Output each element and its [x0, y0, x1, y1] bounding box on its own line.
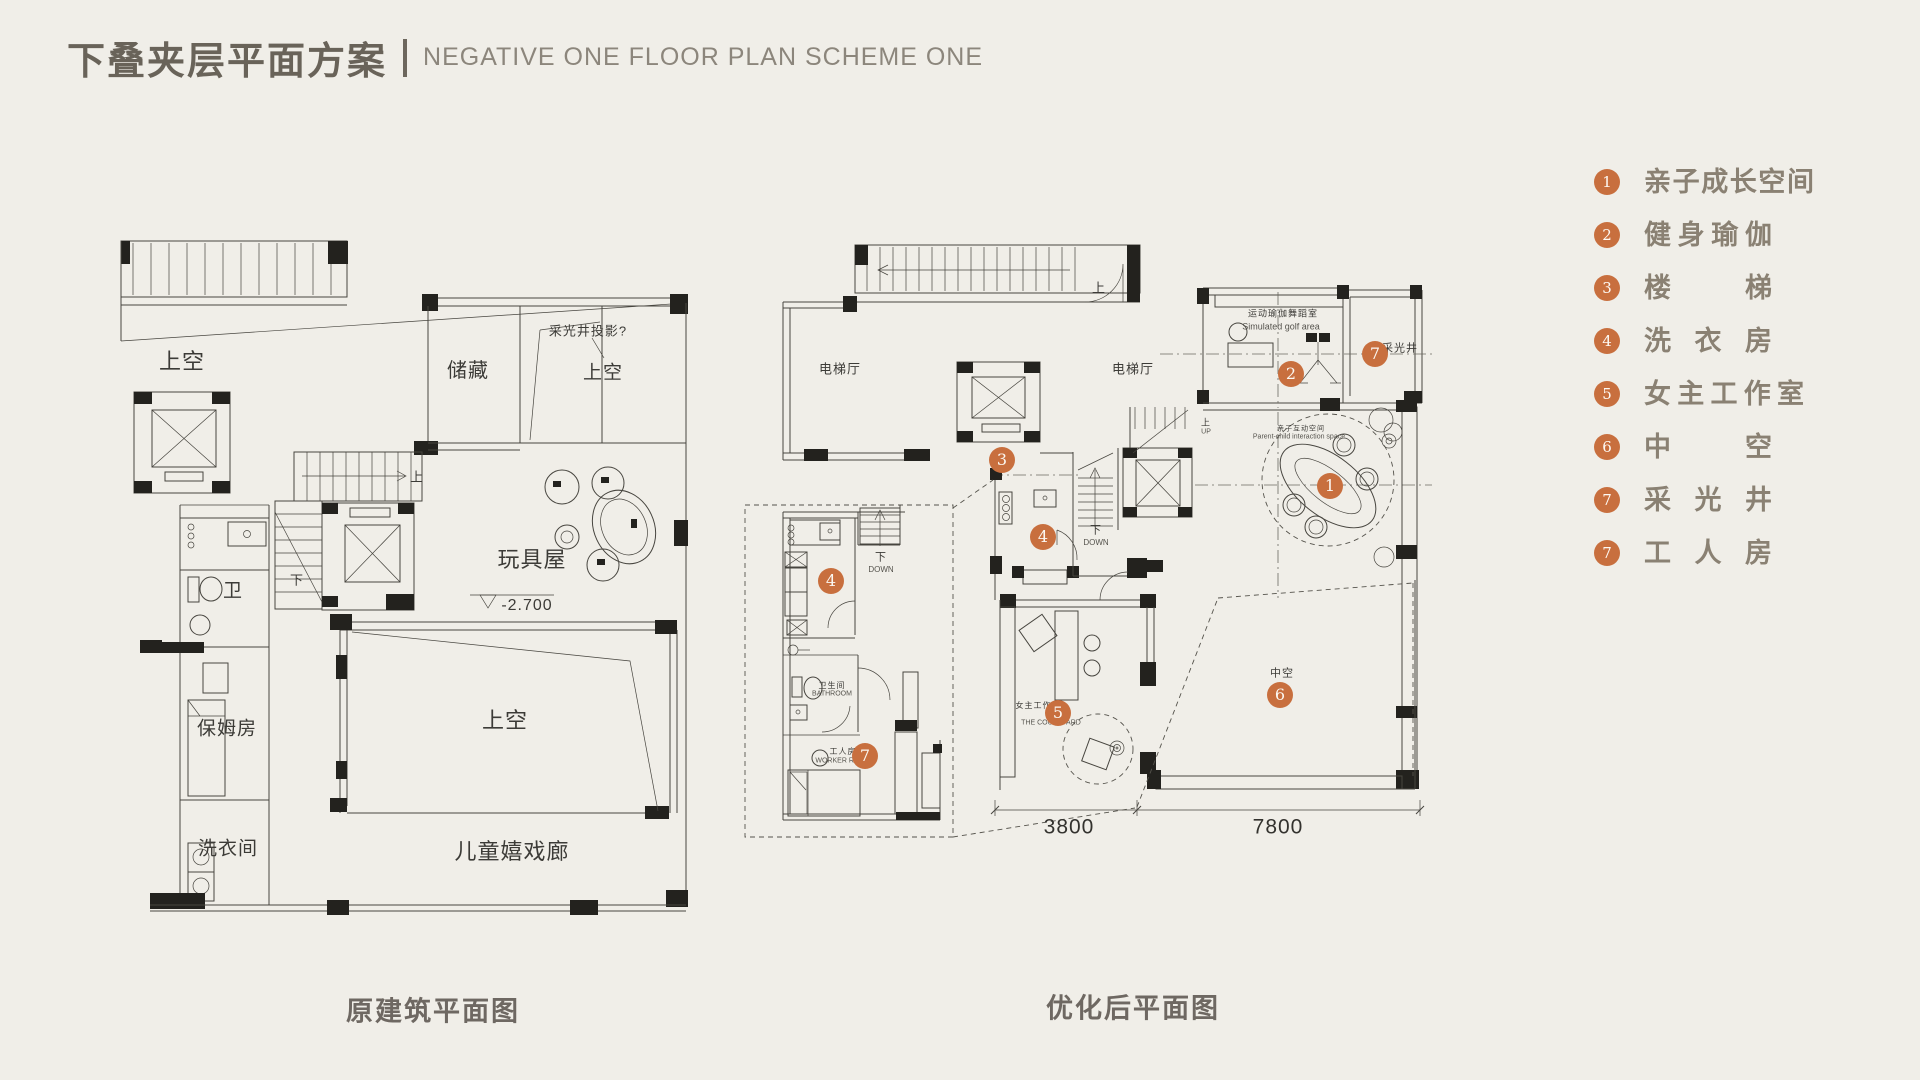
plan-number-badge: 4 [1030, 524, 1056, 550]
legend-item-label: 女主工作室 [1644, 381, 1804, 407]
legend-item: 2 健身瑜伽 [1594, 222, 1814, 248]
plan-label: 储藏 [447, 361, 489, 381]
legend-number-badge: 7 [1594, 540, 1620, 566]
plan-label: 玩具屋 [497, 549, 566, 571]
legend-number-badge: 5 [1594, 381, 1620, 407]
legend-item-label: 采光井 [1644, 487, 1772, 513]
plan-number-badge: 6 [1267, 682, 1293, 708]
legend-item-label: 亲子成长空间 [1644, 169, 1814, 195]
plan-label: 中空 [1270, 669, 1294, 680]
plan-label: BATHROOM [812, 691, 852, 698]
legend-number-badge: 4 [1594, 328, 1620, 354]
plan-number-badge: 5 [1045, 700, 1071, 726]
plan-label: 上 [1201, 419, 1211, 428]
legend-number-badge: 2 [1594, 222, 1620, 248]
plan-number-badge: 4 [818, 568, 844, 594]
plan-label: Simulated golf area [1242, 323, 1320, 332]
plan-label: 电梯厅 [1112, 363, 1154, 376]
plan-label: 7800 [1253, 817, 1304, 838]
plan-number-badge: 7 [1362, 341, 1388, 367]
legend-item-label: 洗衣房 [1644, 328, 1772, 354]
plan-label: Parent-child interaction space [1253, 434, 1345, 441]
plan-label: DOWN [868, 566, 893, 574]
legend-item: 4 洗衣房 [1594, 328, 1814, 354]
legend-number-badge: 3 [1594, 275, 1620, 301]
plan-label: 卫生间 [819, 682, 846, 690]
plan-label: 运动瑜伽舞蹈室 [1248, 310, 1318, 319]
caption-right-plan: 优化后平面图 [1046, 987, 1220, 1026]
legend-item: 3 楼梯 [1594, 275, 1814, 301]
plan-label: 下 [290, 574, 304, 587]
plan-label: 3800 [1044, 817, 1095, 838]
legend-number-badge: 7 [1594, 487, 1620, 513]
plan-label: 上 [410, 471, 424, 484]
legend-item-label: 中空 [1644, 434, 1772, 460]
legend-item: 7 采光井 [1594, 487, 1814, 513]
legend-item: 5 女主工作室 [1594, 381, 1814, 407]
plan-number-badge: 7 [852, 743, 878, 769]
plan-label: 亲子互动空间 [1277, 426, 1325, 433]
plan-number-badge: 2 [1278, 361, 1304, 387]
plan-label: 上空 [583, 364, 623, 383]
plan-number-badge: 1 [1317, 473, 1343, 499]
legend-number-badge: 6 [1594, 434, 1620, 460]
plan-label: -2.700 [501, 598, 552, 614]
plan-label: 洗衣间 [198, 840, 258, 859]
plan-label: 保姆房 [197, 720, 257, 739]
legend-item-label: 工人房 [1644, 540, 1772, 566]
plan-label: 上空 [159, 351, 205, 373]
left-plan-group [121, 241, 688, 915]
plan-label: UP [1201, 429, 1211, 436]
plan-number-badge: 3 [989, 447, 1015, 473]
plan-label: 采光井投影? [549, 325, 627, 338]
plan-label: 下 [1090, 526, 1102, 537]
plan-label: 下 [875, 553, 887, 564]
legend-item: 6 中空 [1594, 434, 1814, 460]
presentation-slide: 下叠夹层平面方案 NEGATIVE ONE FLOOR PLAN SCHEME … [0, 0, 1920, 1080]
plan-label: 上空 [482, 710, 528, 732]
plan-label: 电梯厅 [819, 363, 861, 376]
legend: 1 亲子成长空间 2 健身瑜伽 3 楼梯 4 洗衣房 5 女主工作室 6 中空 … [1594, 169, 1814, 593]
plan-label: 上 [1092, 282, 1106, 295]
legend-item: 1 亲子成长空间 [1594, 169, 1814, 195]
plan-label: DOWN [1083, 539, 1108, 547]
plan-label: 儿童嬉戏廊 [454, 841, 569, 863]
legend-item-label: 健身瑜伽 [1644, 222, 1772, 248]
legend-number-badge: 1 [1594, 169, 1620, 195]
legend-item: 7 工人房 [1594, 540, 1814, 566]
legend-item-label: 楼梯 [1644, 275, 1772, 301]
plan-label: 卫 [223, 582, 243, 601]
caption-left-plan: 原建筑平面图 [346, 990, 520, 1029]
